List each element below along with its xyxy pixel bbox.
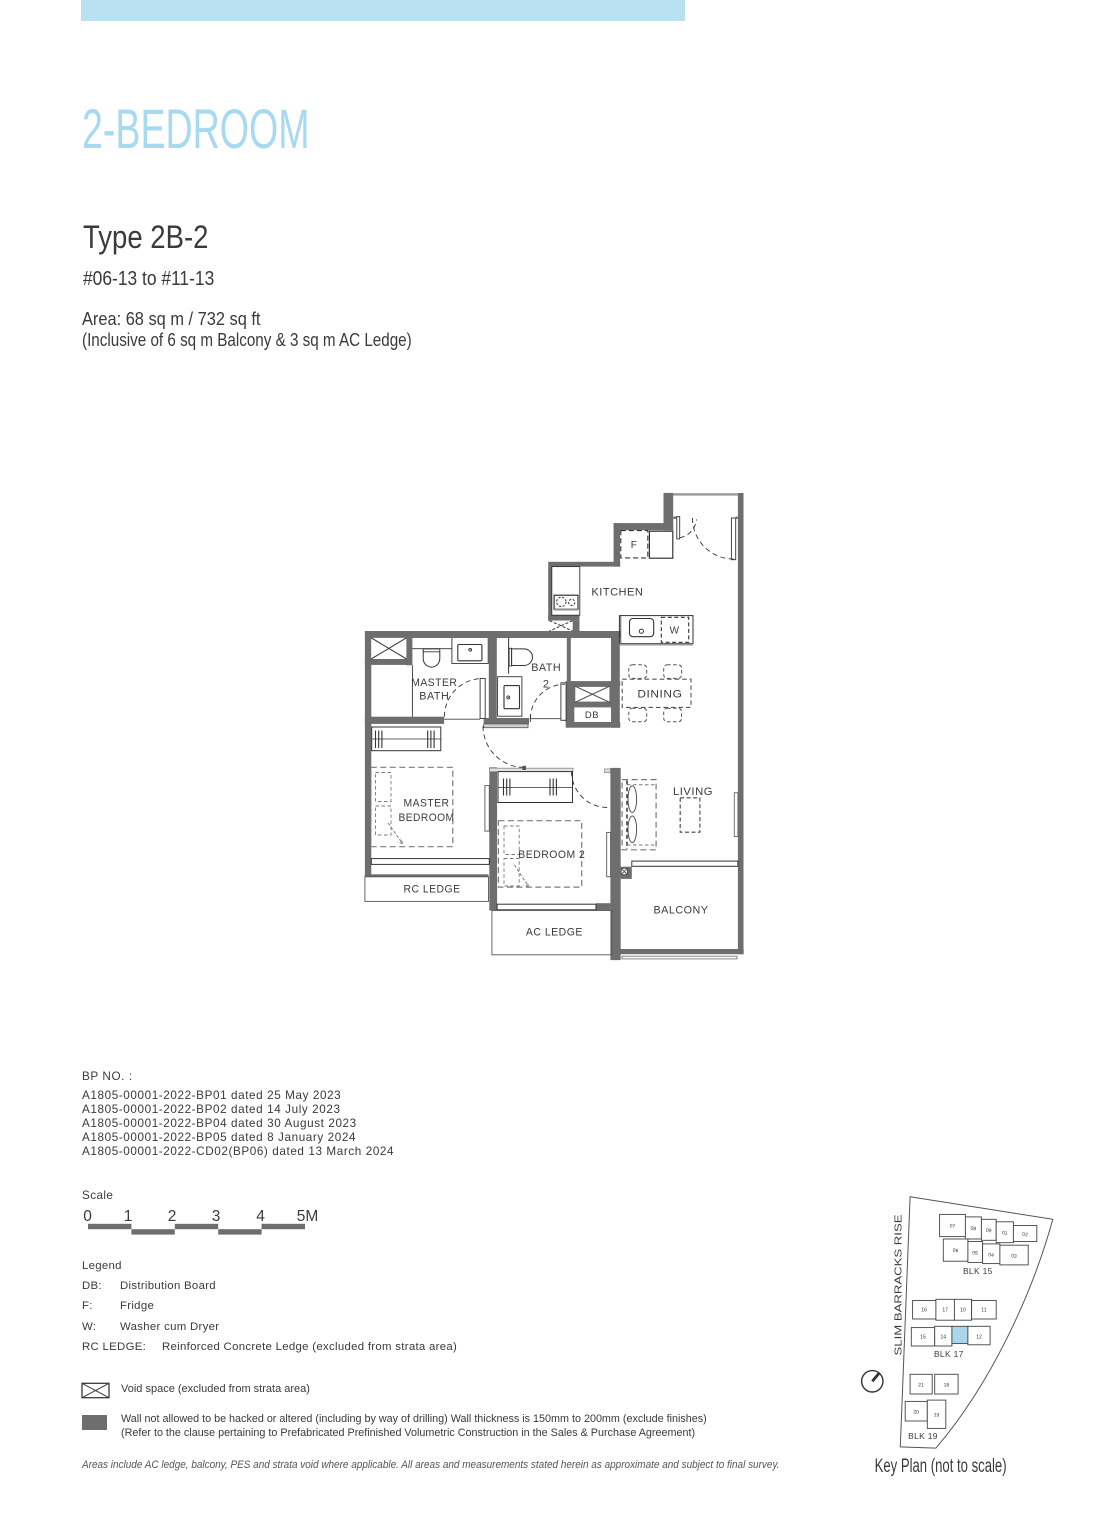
svg-text:MASTERBEDROOM: MASTERBEDROOM [399, 797, 455, 824]
svg-text:BEDROOM 2: BEDROOM 2 [518, 849, 585, 861]
svg-text:03: 03 [1011, 1253, 1018, 1260]
svg-text:AC LEDGE: AC LEDGE [526, 926, 583, 938]
svg-text:06: 06 [952, 1248, 959, 1255]
svg-text:BLK 17: BLK 17 [934, 1349, 964, 1359]
svg-text:14: 14 [941, 1335, 947, 1341]
svg-text:10: 10 [960, 1308, 966, 1314]
svg-text:11: 11 [981, 1308, 986, 1314]
svg-text:18: 18 [943, 1382, 949, 1388]
svg-text:15: 15 [920, 1335, 926, 1341]
svg-text:BATH2: BATH2 [531, 662, 561, 690]
svg-text:BALCONY: BALCONY [654, 905, 709, 917]
svg-text:19: 19 [933, 1412, 939, 1418]
svg-text:05: 05 [972, 1250, 979, 1257]
svg-text:5M: 5M [297, 1208, 319, 1225]
svg-text:0: 0 [83, 1208, 92, 1225]
svg-text:20: 20 [913, 1409, 919, 1415]
svg-text:21: 21 [918, 1382, 924, 1388]
svg-text:02: 02 [1022, 1232, 1029, 1239]
svg-text:01: 01 [1001, 1230, 1008, 1237]
svg-text:2: 2 [168, 1208, 177, 1225]
svg-text:F: F [631, 540, 638, 551]
svg-text:12: 12 [976, 1335, 982, 1341]
svg-text:04: 04 [988, 1252, 995, 1259]
svg-text:08: 08 [970, 1226, 977, 1233]
svg-text:17: 17 [942, 1308, 948, 1314]
svg-text:1: 1 [124, 1208, 133, 1225]
svg-text:LIVING: LIVING [673, 786, 713, 798]
svg-text:09: 09 [985, 1228, 992, 1235]
svg-text:Key Plan (not to scale): Key Plan (not to scale) [875, 1456, 1007, 1477]
svg-text:4: 4 [256, 1208, 265, 1225]
svg-text:RC LEDGE: RC LEDGE [404, 884, 461, 896]
svg-text:DB: DB [585, 710, 599, 721]
svg-text:07: 07 [949, 1223, 956, 1230]
svg-text:3: 3 [212, 1208, 221, 1225]
svg-text:KITCHEN: KITCHEN [591, 587, 643, 599]
svg-text:W: W [670, 626, 680, 637]
svg-text:16: 16 [921, 1308, 927, 1314]
svg-text:DINING: DINING [637, 689, 682, 701]
svg-text:BLK 15: BLK 15 [963, 1266, 993, 1276]
svg-text:BLK 19: BLK 19 [908, 1431, 938, 1441]
svg-text:SLIM BARRACKS RISE: SLIM BARRACKS RISE [893, 1215, 905, 1356]
svg-text:MASTERBATH: MASTERBATH [411, 677, 457, 703]
